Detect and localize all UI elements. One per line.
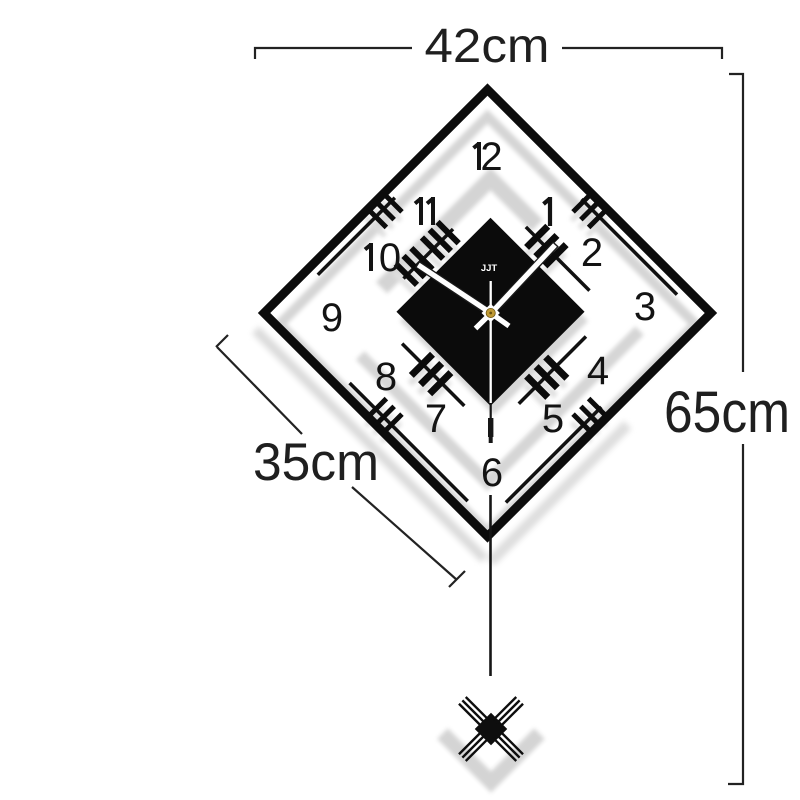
svg-text:7: 7 <box>425 397 447 441</box>
svg-text:0: 0 <box>379 236 401 280</box>
svg-text:6: 6 <box>481 451 503 495</box>
svg-text:8: 8 <box>375 355 397 399</box>
svg-text:42cm: 42cm <box>425 20 550 73</box>
svg-text:2: 2 <box>480 135 502 179</box>
svg-text:35cm: 35cm <box>253 433 379 492</box>
svg-text:2: 2 <box>581 231 603 275</box>
svg-text:JJT: JJT <box>481 263 498 274</box>
svg-text:5: 5 <box>542 397 564 441</box>
svg-text:4: 4 <box>587 349 609 393</box>
svg-text:9: 9 <box>321 296 343 340</box>
svg-text:65cm: 65cm <box>664 380 790 445</box>
svg-text:3: 3 <box>634 285 656 329</box>
